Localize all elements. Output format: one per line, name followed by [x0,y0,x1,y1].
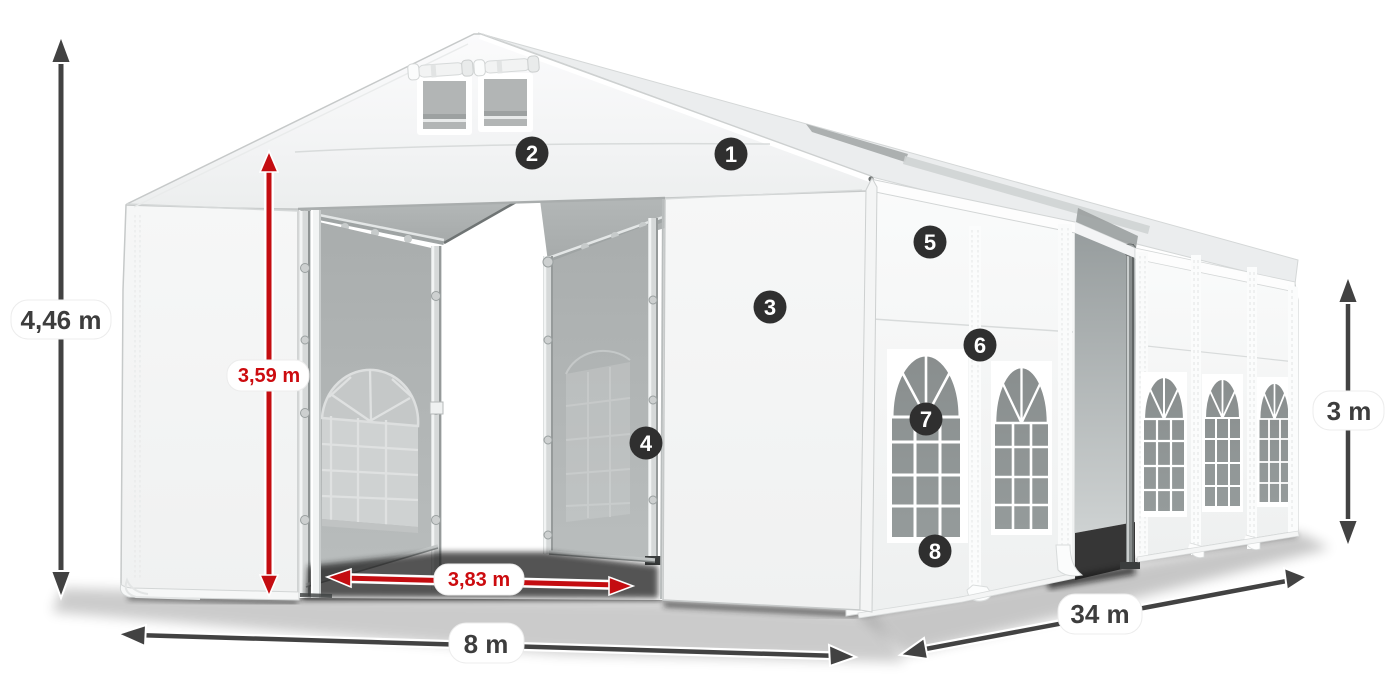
svg-text:34 m: 34 m [1070,599,1129,629]
svg-text:3 m: 3 m [1327,396,1372,426]
svg-text:8: 8 [929,539,941,564]
svg-text:2: 2 [526,141,538,166]
svg-text:3,83 m: 3,83 m [448,569,510,591]
svg-text:3: 3 [764,295,776,320]
svg-text:3,59 m: 3,59 m [238,365,300,387]
svg-text:8 m: 8 m [464,629,509,659]
svg-text:4,46 m: 4,46 m [21,305,102,335]
svg-text:6: 6 [974,333,986,358]
svg-text:7: 7 [920,407,932,432]
svg-text:5: 5 [924,230,936,255]
svg-text:1: 1 [725,142,737,167]
svg-text:4: 4 [640,431,653,456]
